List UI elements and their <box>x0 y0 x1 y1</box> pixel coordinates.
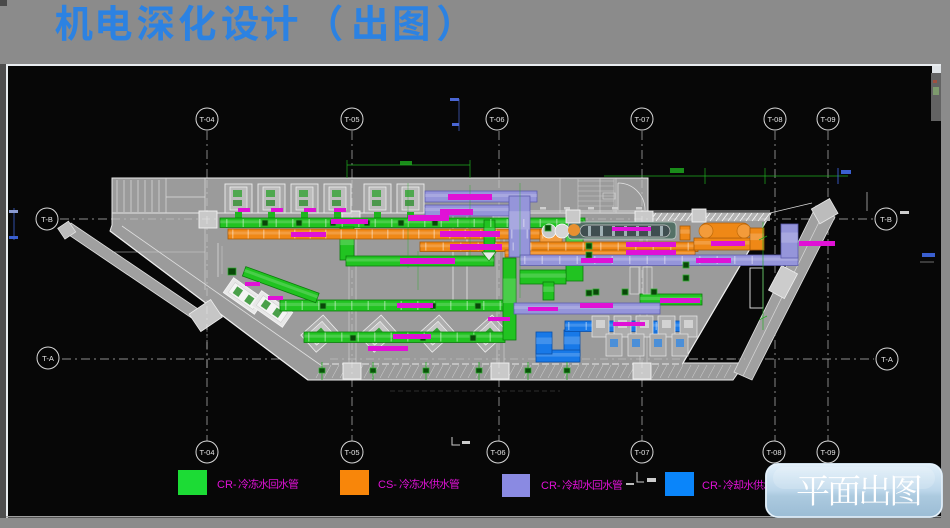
svg-text:T-04: T-04 <box>199 115 214 124</box>
svg-text:T-B: T-B <box>880 215 892 224</box>
svg-text:T-08: T-08 <box>766 448 781 457</box>
svg-text:T-06: T-06 <box>489 115 504 124</box>
svg-text:T-07: T-07 <box>634 115 649 124</box>
svg-text:T-05: T-05 <box>344 448 359 457</box>
svg-text:T-B: T-B <box>41 215 53 224</box>
svg-text:CR-: CR- <box>217 479 237 491</box>
svg-text:CR-: CR- <box>702 480 722 492</box>
svg-text:T-06: T-06 <box>490 448 505 457</box>
svg-text:T-A: T-A <box>42 354 54 363</box>
svg-text:T-05: T-05 <box>344 115 359 124</box>
svg-text:T-09: T-09 <box>820 448 835 457</box>
svg-text:CR-: CR- <box>541 480 561 492</box>
svg-text:T-A: T-A <box>881 355 893 364</box>
svg-text:T-07: T-07 <box>634 448 649 457</box>
svg-text:CS-: CS- <box>378 479 397 491</box>
svg-text:T-09: T-09 <box>820 115 835 124</box>
svg-text:T-08: T-08 <box>767 115 782 124</box>
svg-text:T-04: T-04 <box>199 448 214 457</box>
